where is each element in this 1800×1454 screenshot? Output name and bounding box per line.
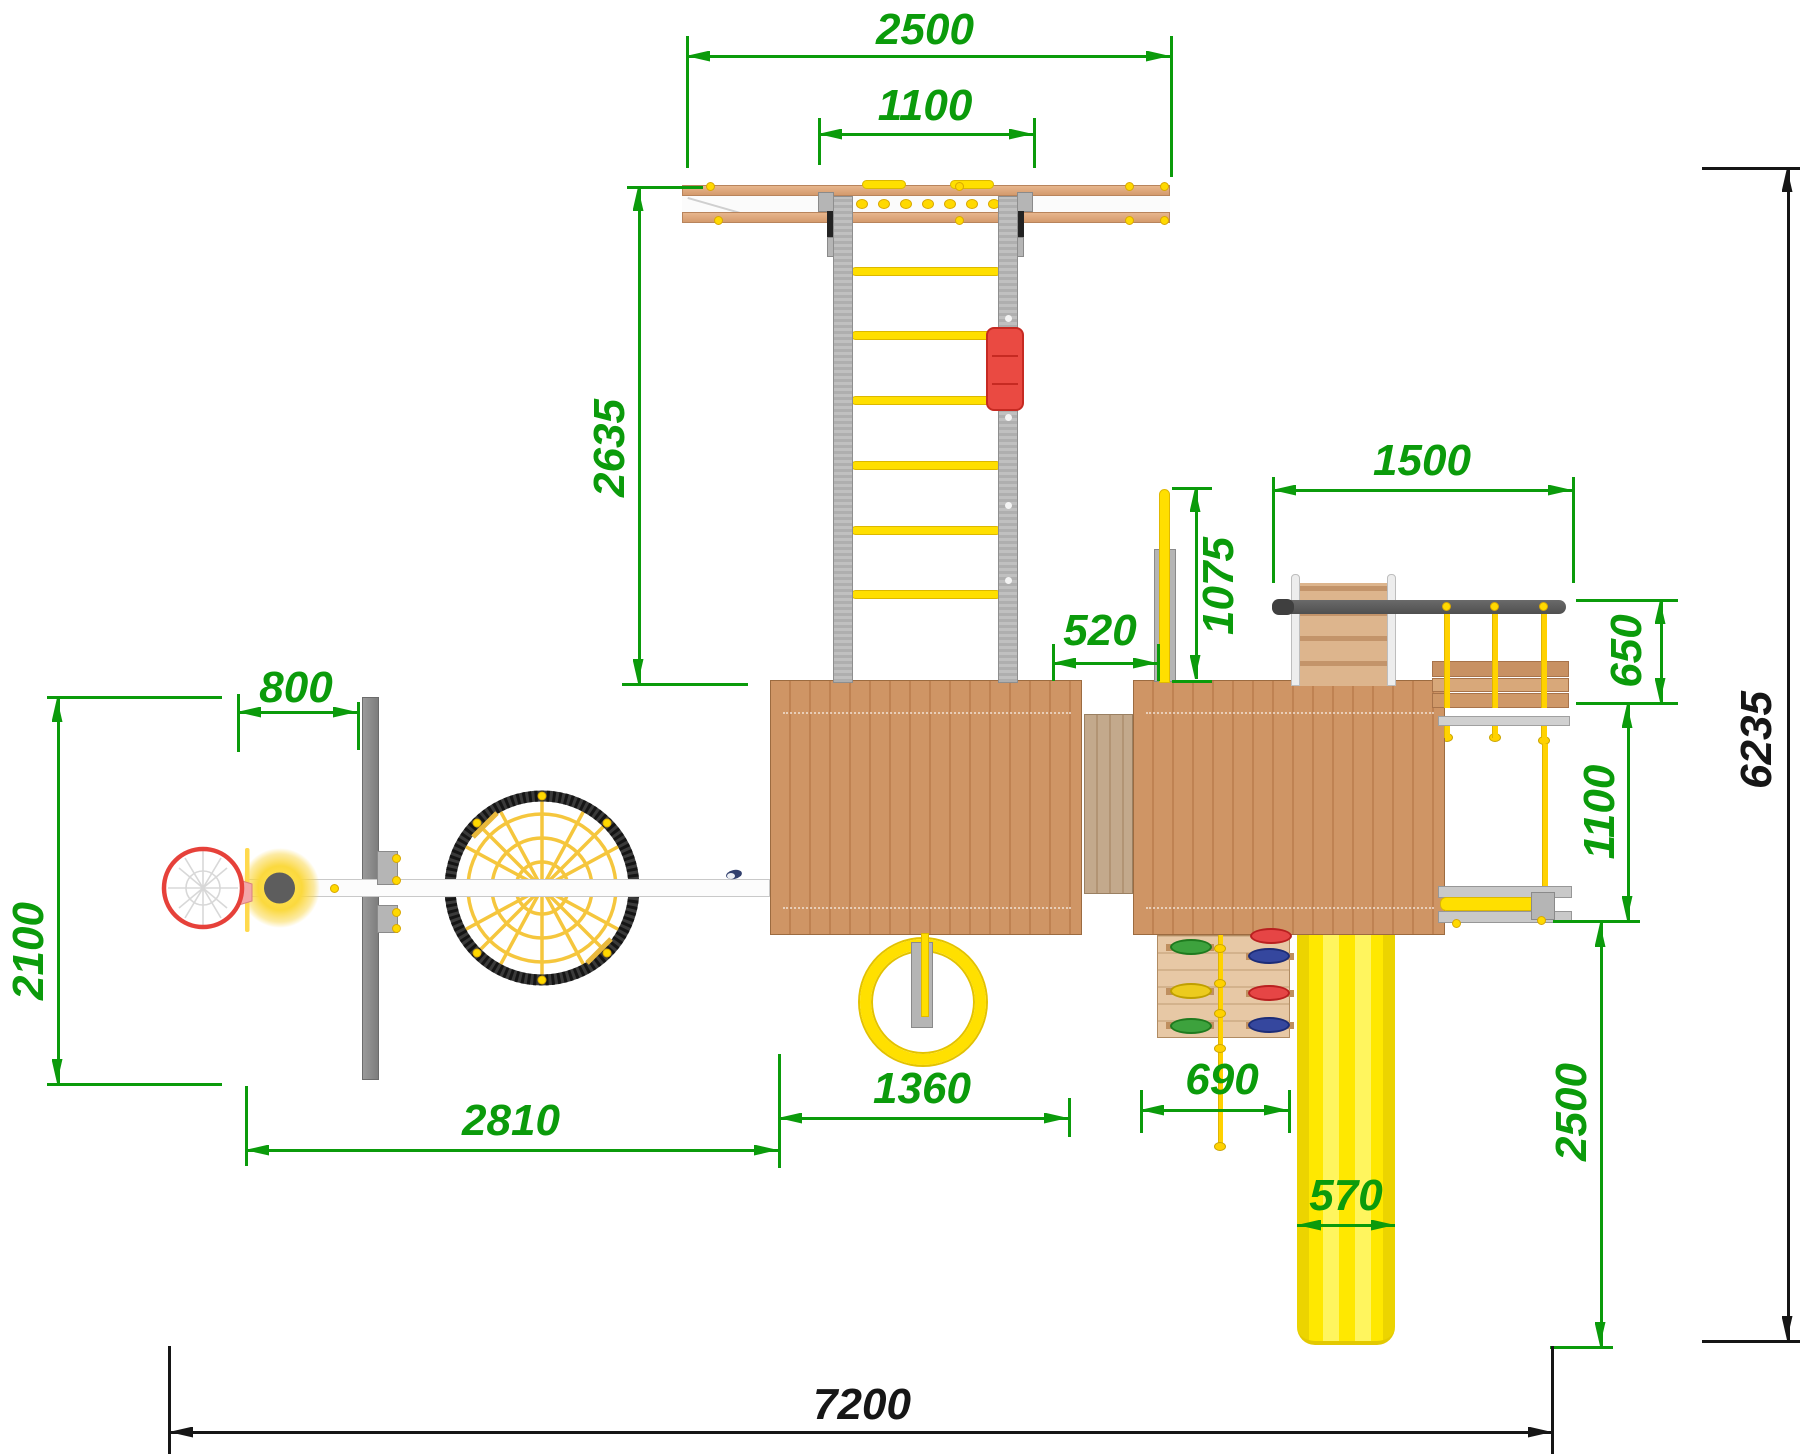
dim-tick — [47, 1083, 222, 1086]
dim-tick — [1553, 920, 1640, 923]
dim-arrow — [1655, 678, 1666, 702]
dim-arrow — [1528, 1427, 1552, 1438]
dim-tick — [818, 118, 821, 165]
dim-arrow — [1052, 658, 1076, 669]
dim-arrow — [1595, 1322, 1606, 1346]
dim-arrow — [169, 1427, 193, 1438]
dimension-label-ladder-length: 2635 — [585, 399, 635, 497]
dim-line-ladder-length — [638, 187, 641, 683]
dim-tick — [237, 694, 240, 752]
dim-arrow — [1782, 1316, 1793, 1340]
dimension-label-bridge-span: 1500 — [1373, 436, 1471, 486]
dim-tick — [1172, 680, 1212, 683]
dim-tick — [1576, 599, 1678, 602]
dim-line-bench-offset — [1627, 704, 1630, 920]
dim-arrow — [1622, 896, 1633, 920]
dim-tick — [47, 696, 222, 699]
dim-tick — [1052, 644, 1055, 681]
dimension-label-deck-gap: 520 — [1063, 606, 1136, 656]
dim-tick — [1702, 1340, 1800, 1343]
dim-arrow — [333, 707, 357, 718]
dim-tick — [245, 1086, 248, 1166]
dim-tick — [622, 683, 748, 686]
dim-arrow — [633, 187, 644, 211]
dim-tick — [1551, 1346, 1554, 1454]
dimension-label-total-depth: 6235 — [1732, 691, 1782, 789]
dimension-label-ladder-width: 1100 — [878, 81, 973, 131]
dimension-label-total-width: 7200 — [813, 1380, 911, 1430]
dim-arrow — [1782, 168, 1793, 192]
dim-line-ring-offset — [778, 1117, 1068, 1120]
dim-arrow — [52, 1059, 63, 1083]
dim-tick — [686, 36, 689, 168]
dim-arrow — [1044, 1113, 1068, 1124]
dim-arrow — [237, 707, 261, 718]
dim-arrow — [245, 1145, 269, 1156]
dim-arrow — [1297, 1220, 1321, 1231]
dim-arrow — [754, 1145, 778, 1156]
dim-tick — [1550, 1346, 1613, 1349]
dim-arrow — [1548, 485, 1572, 496]
dim-tick — [1157, 644, 1160, 681]
dimension-label-swing-span: 2810 — [462, 1096, 560, 1146]
dim-line-slide-run — [1600, 923, 1603, 1346]
dim-arrow — [1655, 600, 1666, 624]
dim-tick — [1702, 167, 1800, 170]
dim-arrow — [1140, 1105, 1164, 1116]
dimension-label-ring-offset: 1360 — [873, 1064, 971, 1114]
dim-arrow — [1595, 923, 1606, 947]
dimension-label-beam-span: 2500 — [876, 5, 974, 55]
dim-arrow — [1264, 1105, 1288, 1116]
dim-tick — [1140, 1090, 1143, 1133]
dim-arrow — [778, 1113, 802, 1124]
dim-tick — [168, 1346, 171, 1454]
dim-tick — [357, 702, 360, 750]
dim-line-ladder-width — [818, 133, 1033, 136]
dim-tick — [627, 186, 703, 189]
dim-arrow — [1146, 51, 1170, 62]
dimension-label-bench-depth: 650 — [1602, 614, 1652, 687]
dim-arrow — [1009, 129, 1033, 140]
dimension-label-wall-width: 690 — [1185, 1055, 1258, 1105]
dim-tick — [1170, 36, 1173, 177]
dim-arrow — [1371, 1220, 1395, 1231]
dim-line-total-depth — [1787, 168, 1790, 1340]
dim-tick — [1572, 477, 1575, 583]
dim-tick — [1068, 1098, 1071, 1137]
dimensions-layer: 2500110026351500107552065011002500623572… — [0, 0, 1800, 1454]
dim-arrow — [1133, 658, 1157, 669]
dim-tick — [1172, 487, 1212, 490]
dimension-label-slide-run: 2500 — [1547, 1063, 1597, 1161]
dimension-label-hoop-offset: 800 — [259, 663, 332, 713]
dimension-label-swing-frame: 2100 — [4, 902, 54, 1000]
dim-arrow — [633, 659, 644, 683]
dim-line-swing-frame — [57, 698, 60, 1083]
dim-arrow — [52, 698, 63, 722]
dimension-label-slide-width: 570 — [1309, 1171, 1382, 1221]
dim-arrow — [1622, 704, 1633, 728]
dimension-label-pole-height: 1075 — [1194, 537, 1244, 635]
dim-arrow — [686, 51, 710, 62]
dimension-label-bench-offset: 1100 — [1575, 765, 1625, 860]
dim-tick — [1033, 118, 1036, 168]
dim-arrow — [1190, 488, 1201, 512]
dim-arrow — [818, 129, 842, 140]
dim-line-swing-span — [245, 1149, 778, 1152]
dim-arrow — [1272, 485, 1296, 496]
dim-tick — [778, 1054, 781, 1168]
dim-tick — [1288, 1090, 1291, 1133]
playground-top-view-drawing: 2500110026351500107552065011002500623572… — [0, 0, 1800, 1454]
dim-arrow — [1190, 655, 1201, 679]
dim-line-total-width — [169, 1431, 1552, 1434]
dim-line-bridge-span — [1272, 489, 1572, 492]
dim-tick — [1272, 477, 1275, 583]
